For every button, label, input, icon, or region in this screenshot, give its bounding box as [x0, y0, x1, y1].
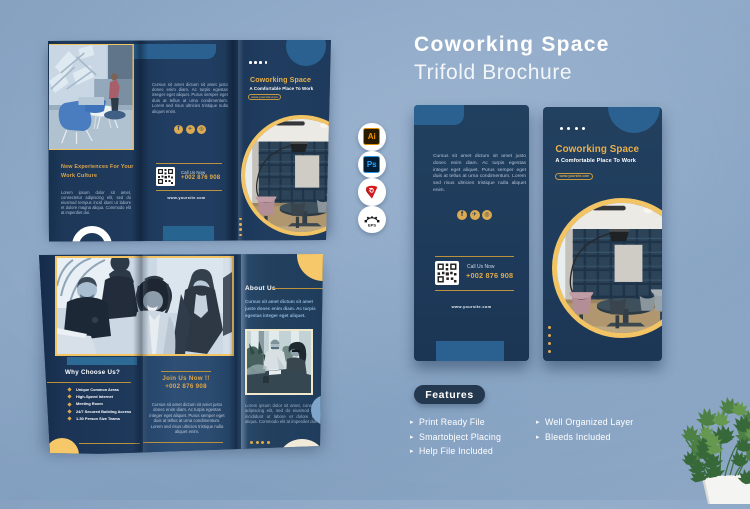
- svg-text:EPS: EPS: [368, 223, 376, 228]
